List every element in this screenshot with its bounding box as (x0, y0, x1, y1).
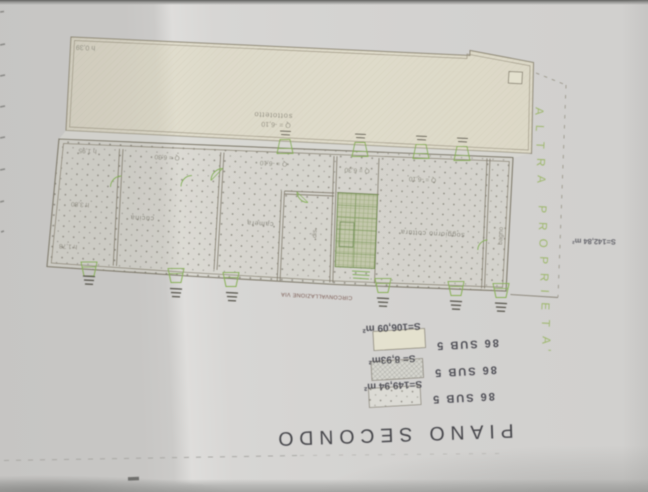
svg-text:P: P (537, 256, 549, 265)
svg-text:Q = -6,10: Q = -6,10 (259, 159, 287, 167)
svg-text:A: A (539, 336, 551, 345)
svg-text:T: T (539, 319, 551, 327)
svg-text:h 0,39: h 0,39 (76, 43, 96, 51)
svg-text:86 SUB 5: 86 SUB 5 (433, 363, 497, 378)
svg-text:L: L (533, 125, 545, 133)
svg-text:h 1,95: h 1,95 (78, 147, 97, 155)
svg-text:dis.: dis. (311, 227, 319, 238)
svg-text:Q = -6,10: Q = -6,10 (408, 175, 436, 183)
svg-text:S=142,84 m²: S=142,84 m² (572, 237, 616, 247)
svg-text:bagno: bagno (497, 226, 505, 245)
svg-text:86 SUB 5: 86 SUB 5 (435, 336, 499, 351)
svg-text:T: T (533, 141, 545, 149)
svg-text:Q = 6,30: Q = 6,30 (344, 166, 370, 174)
svg-text:S= 8,93m²: S= 8,93m² (368, 352, 416, 365)
svg-text:R: R (536, 222, 548, 231)
svg-text:S=106,09 m²: S=106,09 m² (361, 320, 420, 334)
svg-text:R: R (537, 273, 549, 282)
svg-text:E: E (538, 302, 550, 311)
svg-text:PIANO SECONDO: PIANO SECONDO (272, 419, 514, 449)
svg-text:cucina: cucina (130, 213, 154, 221)
svg-text:camera: camera (246, 219, 273, 227)
svg-text:A: A (534, 175, 546, 184)
svg-text:86 SUB 5: 86 SUB 5 (431, 390, 495, 405)
svg-text:Q = 6,30: Q = 6,30 (154, 153, 180, 161)
svg-text:O: O (536, 238, 548, 248)
svg-text:R: R (534, 158, 546, 167)
svg-text:I: I (538, 289, 550, 293)
svg-text:h 1,78: h 1,78 (58, 242, 77, 250)
svg-text:h 3,80: h 3,80 (70, 200, 89, 208)
svg-text:': ' (540, 349, 552, 352)
svg-text:A: A (532, 107, 544, 116)
svg-text:P: P (535, 205, 547, 214)
svg-text:CIRCONVALLAZIONE VIA: CIRCONVALLAZIONE VIA (281, 291, 353, 301)
